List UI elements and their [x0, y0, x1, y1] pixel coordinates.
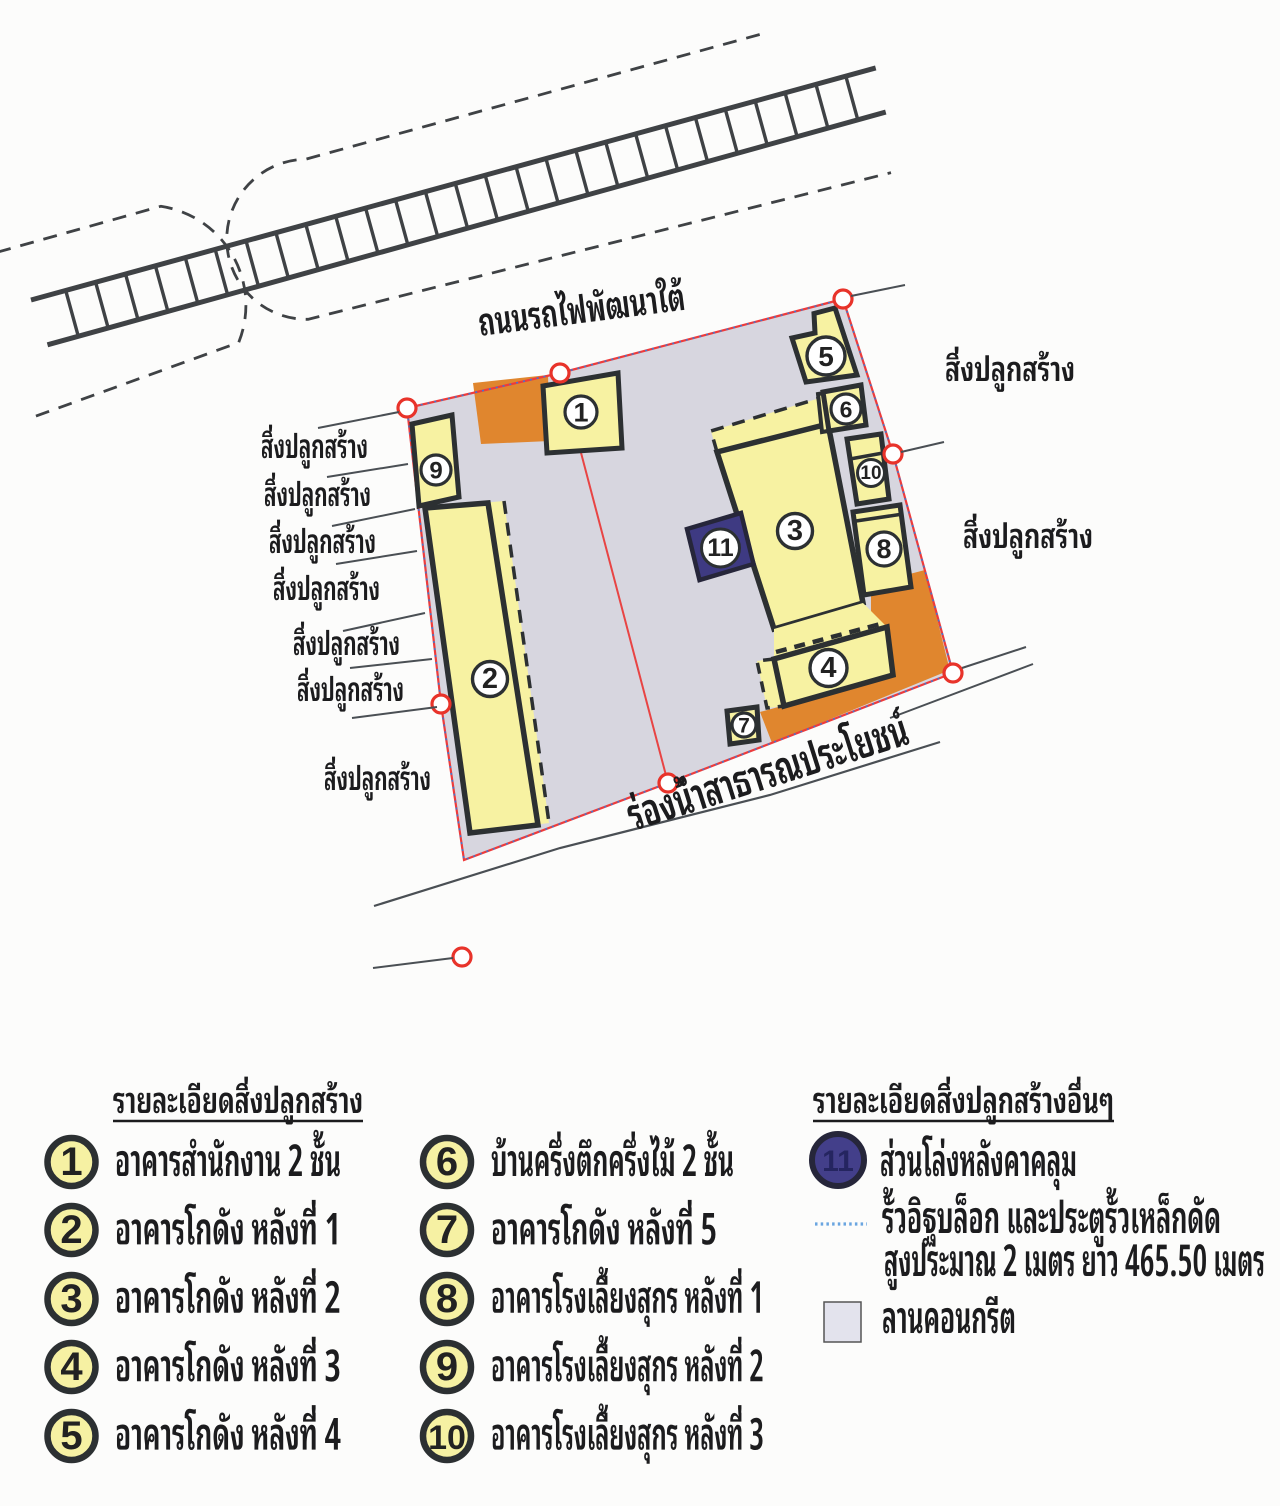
svg-text:5: 5: [818, 341, 834, 372]
svg-text:2: 2: [482, 663, 498, 695]
svg-text:6: 6: [840, 396, 853, 422]
svg-text:11: 11: [822, 1145, 854, 1178]
svg-text:5: 5: [60, 1414, 82, 1458]
svg-text:2: 2: [60, 1208, 82, 1252]
svg-text:4: 4: [820, 652, 836, 684]
svg-text:7: 7: [738, 715, 750, 738]
svg-text:3: 3: [787, 515, 803, 547]
svg-text:8: 8: [876, 534, 891, 564]
svg-text:1: 1: [573, 398, 588, 428]
svg-text:6: 6: [436, 1140, 458, 1184]
svg-text:10: 10: [428, 1419, 466, 1457]
svg-text:1: 1: [60, 1140, 82, 1184]
svg-text:9: 9: [436, 1345, 458, 1389]
svg-text:10: 10: [860, 463, 881, 484]
svg-text:11: 11: [707, 534, 734, 562]
svg-text:7: 7: [436, 1208, 458, 1252]
svg-text:3: 3: [60, 1277, 82, 1321]
svg-text:9: 9: [429, 458, 442, 485]
svg-text:8: 8: [436, 1277, 458, 1321]
svg-text:4: 4: [60, 1345, 83, 1389]
